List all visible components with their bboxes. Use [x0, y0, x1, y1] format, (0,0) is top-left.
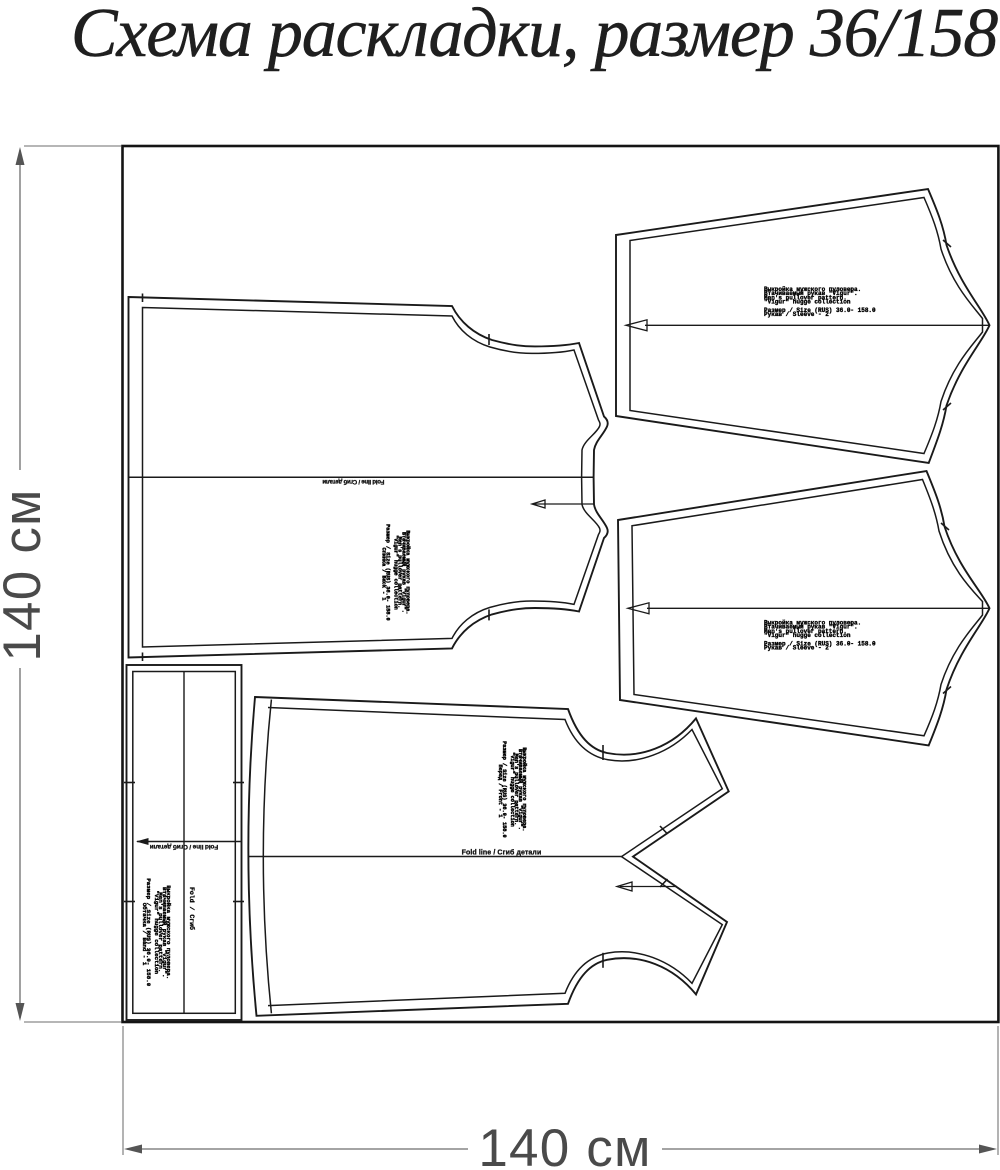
svg-text:Fold line / Сгиб детали: Fold line / Сгиб детали [150, 843, 219, 851]
svg-text:Выкройка мужского пуловера.: Выкройка мужского пуловера. Втачиваемый … [497, 741, 528, 841]
svg-text:Схема раскладки, размер 36/158: Схема раскладки, размер 36/158 [71, 0, 998, 72]
svg-text:140 см: 140 см [0, 488, 52, 661]
svg-text:Fold / Сгиб: Fold / Сгиб [188, 887, 196, 930]
svg-text:Выкройка мужского пуловера.: Выкройка мужского пуловера. Втачиваемый … [764, 286, 879, 318]
svg-text:Выкройка мужского пуловера.: Выкройка мужского пуловера. Втачиваемый … [381, 524, 412, 624]
svg-text:Fold line / Сгиб детали: Fold line / Сгиб детали [462, 849, 542, 857]
svg-text:Fold line / Сгиб детали: Fold line / Сгиб детали [322, 478, 384, 485]
svg-text:Выкройка мужского пуловера.: Выкройка мужского пуловера. Втачиваемый … [141, 878, 172, 989]
svg-text:Выкройка мужского пуловера.: Выкройка мужского пуловера. Втачиваемый … [764, 620, 879, 652]
svg-text:140 см: 140 см [478, 1119, 651, 1170]
